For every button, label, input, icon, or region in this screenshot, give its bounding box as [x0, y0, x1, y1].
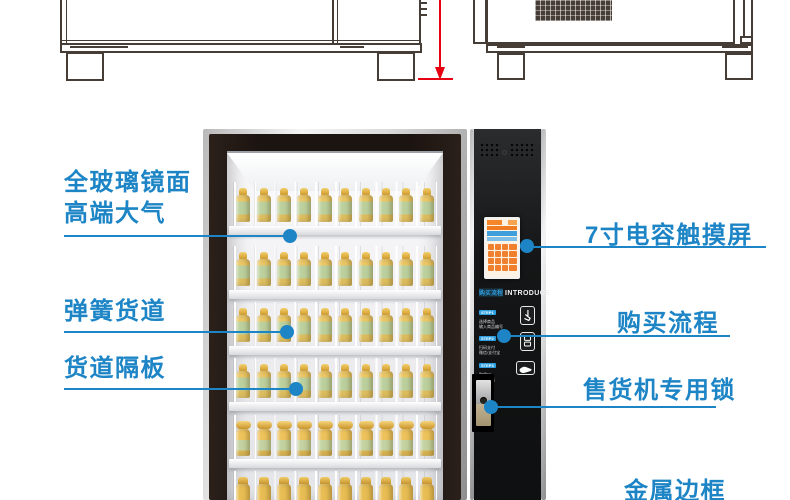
bottle	[356, 419, 376, 459]
bottle	[315, 475, 335, 500]
callout-dot-touchscreen	[520, 239, 534, 253]
bottle	[417, 186, 437, 226]
screen-strip	[487, 226, 517, 230]
bottle	[417, 250, 437, 290]
bottle	[376, 362, 396, 402]
bottle	[233, 186, 253, 226]
bottle	[233, 419, 253, 459]
bottle	[274, 186, 294, 226]
shelf-board	[229, 459, 441, 468]
keypad-button	[488, 244, 494, 250]
bottle	[294, 306, 314, 346]
bottle	[254, 475, 274, 500]
keypad-button	[488, 251, 494, 257]
take-goods-icon	[516, 361, 535, 375]
callout-spring-lane: 弹簧货道	[64, 296, 166, 327]
bottle	[315, 250, 335, 290]
step-tag: STEP3	[479, 363, 496, 368]
screen-banner	[508, 220, 517, 225]
shelf-row	[233, 419, 437, 461]
camera-hole	[502, 150, 507, 155]
bottle	[274, 419, 294, 459]
bottle	[417, 419, 437, 459]
bottle	[417, 475, 437, 500]
bottle	[294, 250, 314, 290]
bottle	[233, 362, 253, 402]
bottle	[396, 475, 416, 500]
keypad-button	[509, 251, 517, 257]
keypad-button	[502, 265, 508, 271]
bottle	[315, 419, 335, 459]
bottle	[274, 250, 294, 290]
bottle	[254, 306, 274, 346]
bottle	[294, 186, 314, 226]
bottle	[274, 475, 294, 500]
keypad-button	[509, 258, 517, 264]
callout-glass-mirror: 全玻璃镜面 高端大气	[64, 167, 192, 229]
shelf-row	[233, 250, 437, 292]
bottle	[254, 186, 274, 226]
callout-dot-flow	[497, 329, 511, 343]
keypad-button	[495, 265, 501, 271]
keypad-button	[502, 251, 508, 257]
bottle	[254, 250, 274, 290]
callout-dot-divider	[289, 382, 303, 396]
step-tag: STEP2	[479, 336, 496, 341]
speaker-grille-right	[510, 143, 536, 158]
keypad-button	[509, 244, 517, 250]
touch-screen	[484, 217, 520, 279]
bottle	[356, 186, 376, 226]
bottle	[376, 419, 396, 459]
product-annotation-page: 购买流程 INTRODUCE STEP1 选择商品 输入商品编号 STEP2 扫…	[0, 0, 790, 500]
bottle	[315, 362, 335, 402]
keypad-button	[495, 244, 501, 250]
speaker-grille-left	[480, 143, 501, 158]
door-glass-window	[227, 151, 443, 500]
keypad-button	[488, 265, 494, 271]
bottle	[376, 186, 396, 226]
bottle	[356, 250, 376, 290]
bottle	[376, 475, 396, 500]
shelf-board	[229, 290, 441, 299]
bottle	[335, 475, 355, 500]
keypad-button	[502, 244, 508, 250]
bottle	[396, 306, 416, 346]
shelf-board	[229, 402, 441, 411]
bottle	[417, 306, 437, 346]
bottle	[356, 475, 376, 500]
front-foot-left	[66, 52, 104, 81]
bottle	[376, 250, 396, 290]
screen-row	[487, 231, 517, 236]
bottle	[396, 419, 416, 459]
touch-screen-icon	[520, 306, 535, 325]
shelf-board	[229, 346, 441, 355]
vent-grille	[535, 0, 612, 21]
callout-lane-divider: 货道隔板	[64, 353, 166, 384]
bottle	[417, 362, 437, 402]
keypad-button	[502, 258, 508, 264]
bottle	[335, 419, 355, 459]
callout-metal-frame: 金属边框	[624, 476, 726, 500]
keypad-button	[488, 258, 494, 264]
keypad-button	[509, 265, 517, 271]
bottle	[335, 186, 355, 226]
bottle	[294, 475, 314, 500]
bottle	[233, 475, 253, 500]
keypad-button	[495, 258, 501, 264]
screen-row	[487, 237, 517, 241]
side-foot-left	[497, 53, 525, 80]
callout-vending-lock: 售货机专用锁	[583, 375, 736, 406]
shelf-row	[233, 186, 437, 228]
intro-title-cn: 购买流程	[479, 288, 503, 297]
callout-dot-spring	[280, 325, 294, 339]
bottle	[274, 362, 294, 402]
bottle	[254, 419, 274, 459]
screen-banner	[487, 220, 502, 225]
bottle	[376, 306, 396, 346]
shelf-board	[229, 226, 441, 235]
keypad-button	[495, 251, 501, 257]
step-tag: STEP1	[479, 310, 496, 315]
bottle	[254, 362, 274, 402]
callout-dot-lock	[484, 400, 498, 414]
side-foot-right	[725, 53, 753, 80]
bottle	[335, 306, 355, 346]
bottle	[294, 419, 314, 459]
bottle	[233, 250, 253, 290]
screen-keypad	[486, 243, 518, 271]
intro-title-en: INTRODUCE	[505, 290, 550, 297]
shelf-row	[233, 306, 437, 348]
bottle	[335, 250, 355, 290]
shelf-row	[233, 362, 437, 404]
bottle	[356, 306, 376, 346]
bottle	[315, 306, 335, 346]
bottle	[335, 362, 355, 402]
bottle	[233, 306, 253, 346]
bottle	[396, 362, 416, 402]
front-foot-right	[377, 52, 415, 81]
bottle	[356, 362, 376, 402]
bottle	[396, 186, 416, 226]
callout-dot-glass	[283, 229, 297, 243]
bottle	[315, 186, 335, 226]
bottle	[396, 250, 416, 290]
shelf-row	[233, 475, 437, 500]
